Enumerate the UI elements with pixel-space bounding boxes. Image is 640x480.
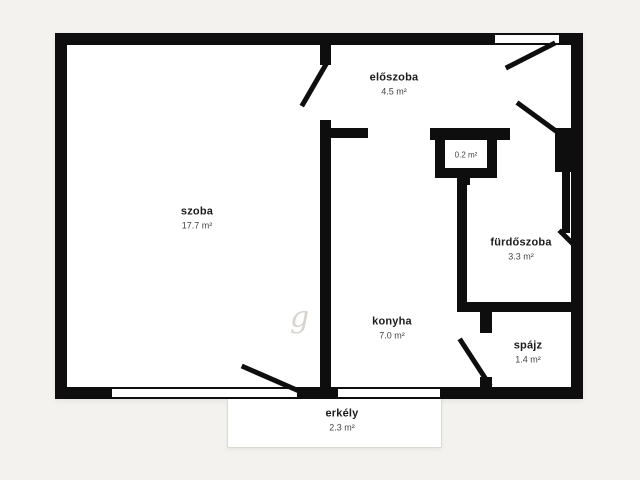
room-name: konyha (372, 316, 412, 329)
wall-corridor-corner (555, 128, 571, 172)
wall-closet-top (430, 128, 510, 140)
wall-furdoszoba-bottom (457, 302, 583, 312)
wall-left (55, 33, 67, 399)
wall-szoba-divider (320, 120, 331, 387)
room-area: 17.7 m² (181, 220, 213, 230)
apartment-interior (55, 33, 583, 399)
room-label-szoba: szoba 17.7 m² (181, 206, 213, 231)
room-area: 1.4 m² (514, 354, 543, 364)
wall-konyha-furdoszoba (457, 178, 467, 312)
floorplan-canvas: szoba 17.7 m² előszoba 4.5 m² konyha 7.0… (0, 0, 640, 480)
room-name: előszoba (370, 72, 419, 85)
room-label-closet: 0.2 m² (455, 150, 478, 159)
szoba-window (112, 389, 297, 397)
room-label-eloszoba: előszoba 4.5 m² (370, 72, 419, 97)
room-area: 0.2 m² (455, 150, 478, 159)
wall-spajz-stub-top (480, 310, 492, 333)
room-area: 7.0 m² (372, 330, 412, 340)
room-area: 2.3 m² (325, 422, 358, 432)
entrance-door-opening (495, 35, 559, 43)
room-label-spajz: spájz 1.4 m² (514, 340, 543, 365)
room-name: fürdőszoba (490, 237, 551, 250)
room-name: spájz (514, 340, 543, 353)
wall-szoba-divider-stub (320, 45, 331, 65)
watermark-fragment: g (290, 300, 309, 335)
wall-closet-bottom (435, 168, 497, 178)
konyha-window (338, 389, 440, 397)
room-label-erkely: erkély 2.3 m² (325, 408, 358, 433)
room-name: erkély (325, 408, 358, 421)
room-label-furdoszoba: fürdőszoba 3.3 m² (490, 237, 551, 262)
room-area: 3.3 m² (490, 251, 551, 261)
room-label-konyha: konyha 7.0 m² (372, 316, 412, 341)
room-area: 4.5 m² (370, 86, 419, 96)
wall-eloszoba-konyha (331, 128, 368, 138)
wall-right (571, 33, 583, 399)
wall-shaft (562, 172, 570, 233)
wall-spajz-stub-bottom (480, 377, 492, 387)
room-name: szoba (181, 206, 213, 219)
